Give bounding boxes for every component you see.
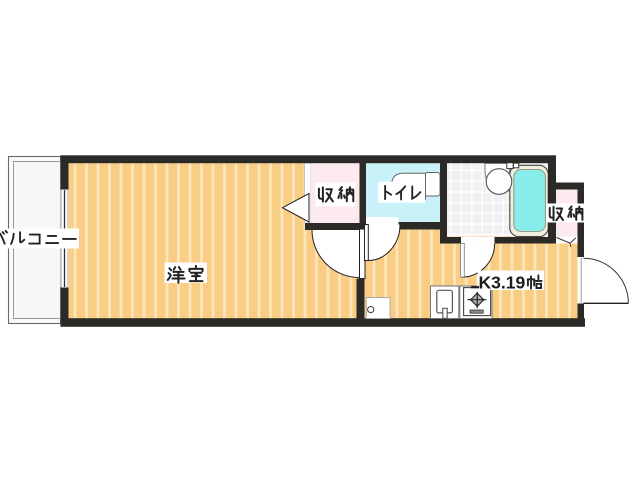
svg-text:K3.19: K3.19 <box>479 273 526 293</box>
